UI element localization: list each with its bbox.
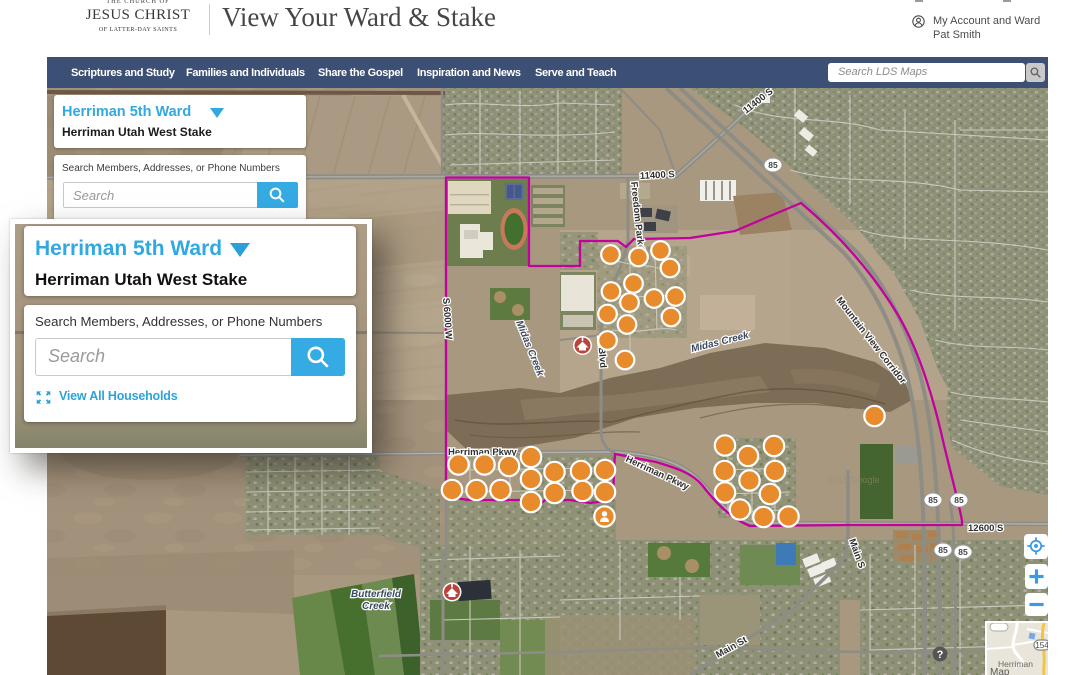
svg-text:Map: Map <box>990 667 1010 675</box>
svg-text:85: 85 <box>768 160 778 170</box>
svg-text:?: ? <box>937 649 944 661</box>
svg-text:11400 S: 11400 S <box>640 169 675 182</box>
svg-text:Creek: Creek <box>362 601 390 612</box>
svg-text:2015 Google: 2015 Google <box>828 475 880 485</box>
svg-text:85: 85 <box>954 495 964 505</box>
svg-text:154: 154 <box>1035 641 1048 650</box>
svg-text:12600 S: 12600 S <box>968 523 1003 534</box>
svg-text:85: 85 <box>938 545 948 555</box>
svg-text:Butterfield: Butterfield <box>351 589 402 600</box>
svg-text:85: 85 <box>958 547 968 557</box>
svg-text:85: 85 <box>928 495 938 505</box>
